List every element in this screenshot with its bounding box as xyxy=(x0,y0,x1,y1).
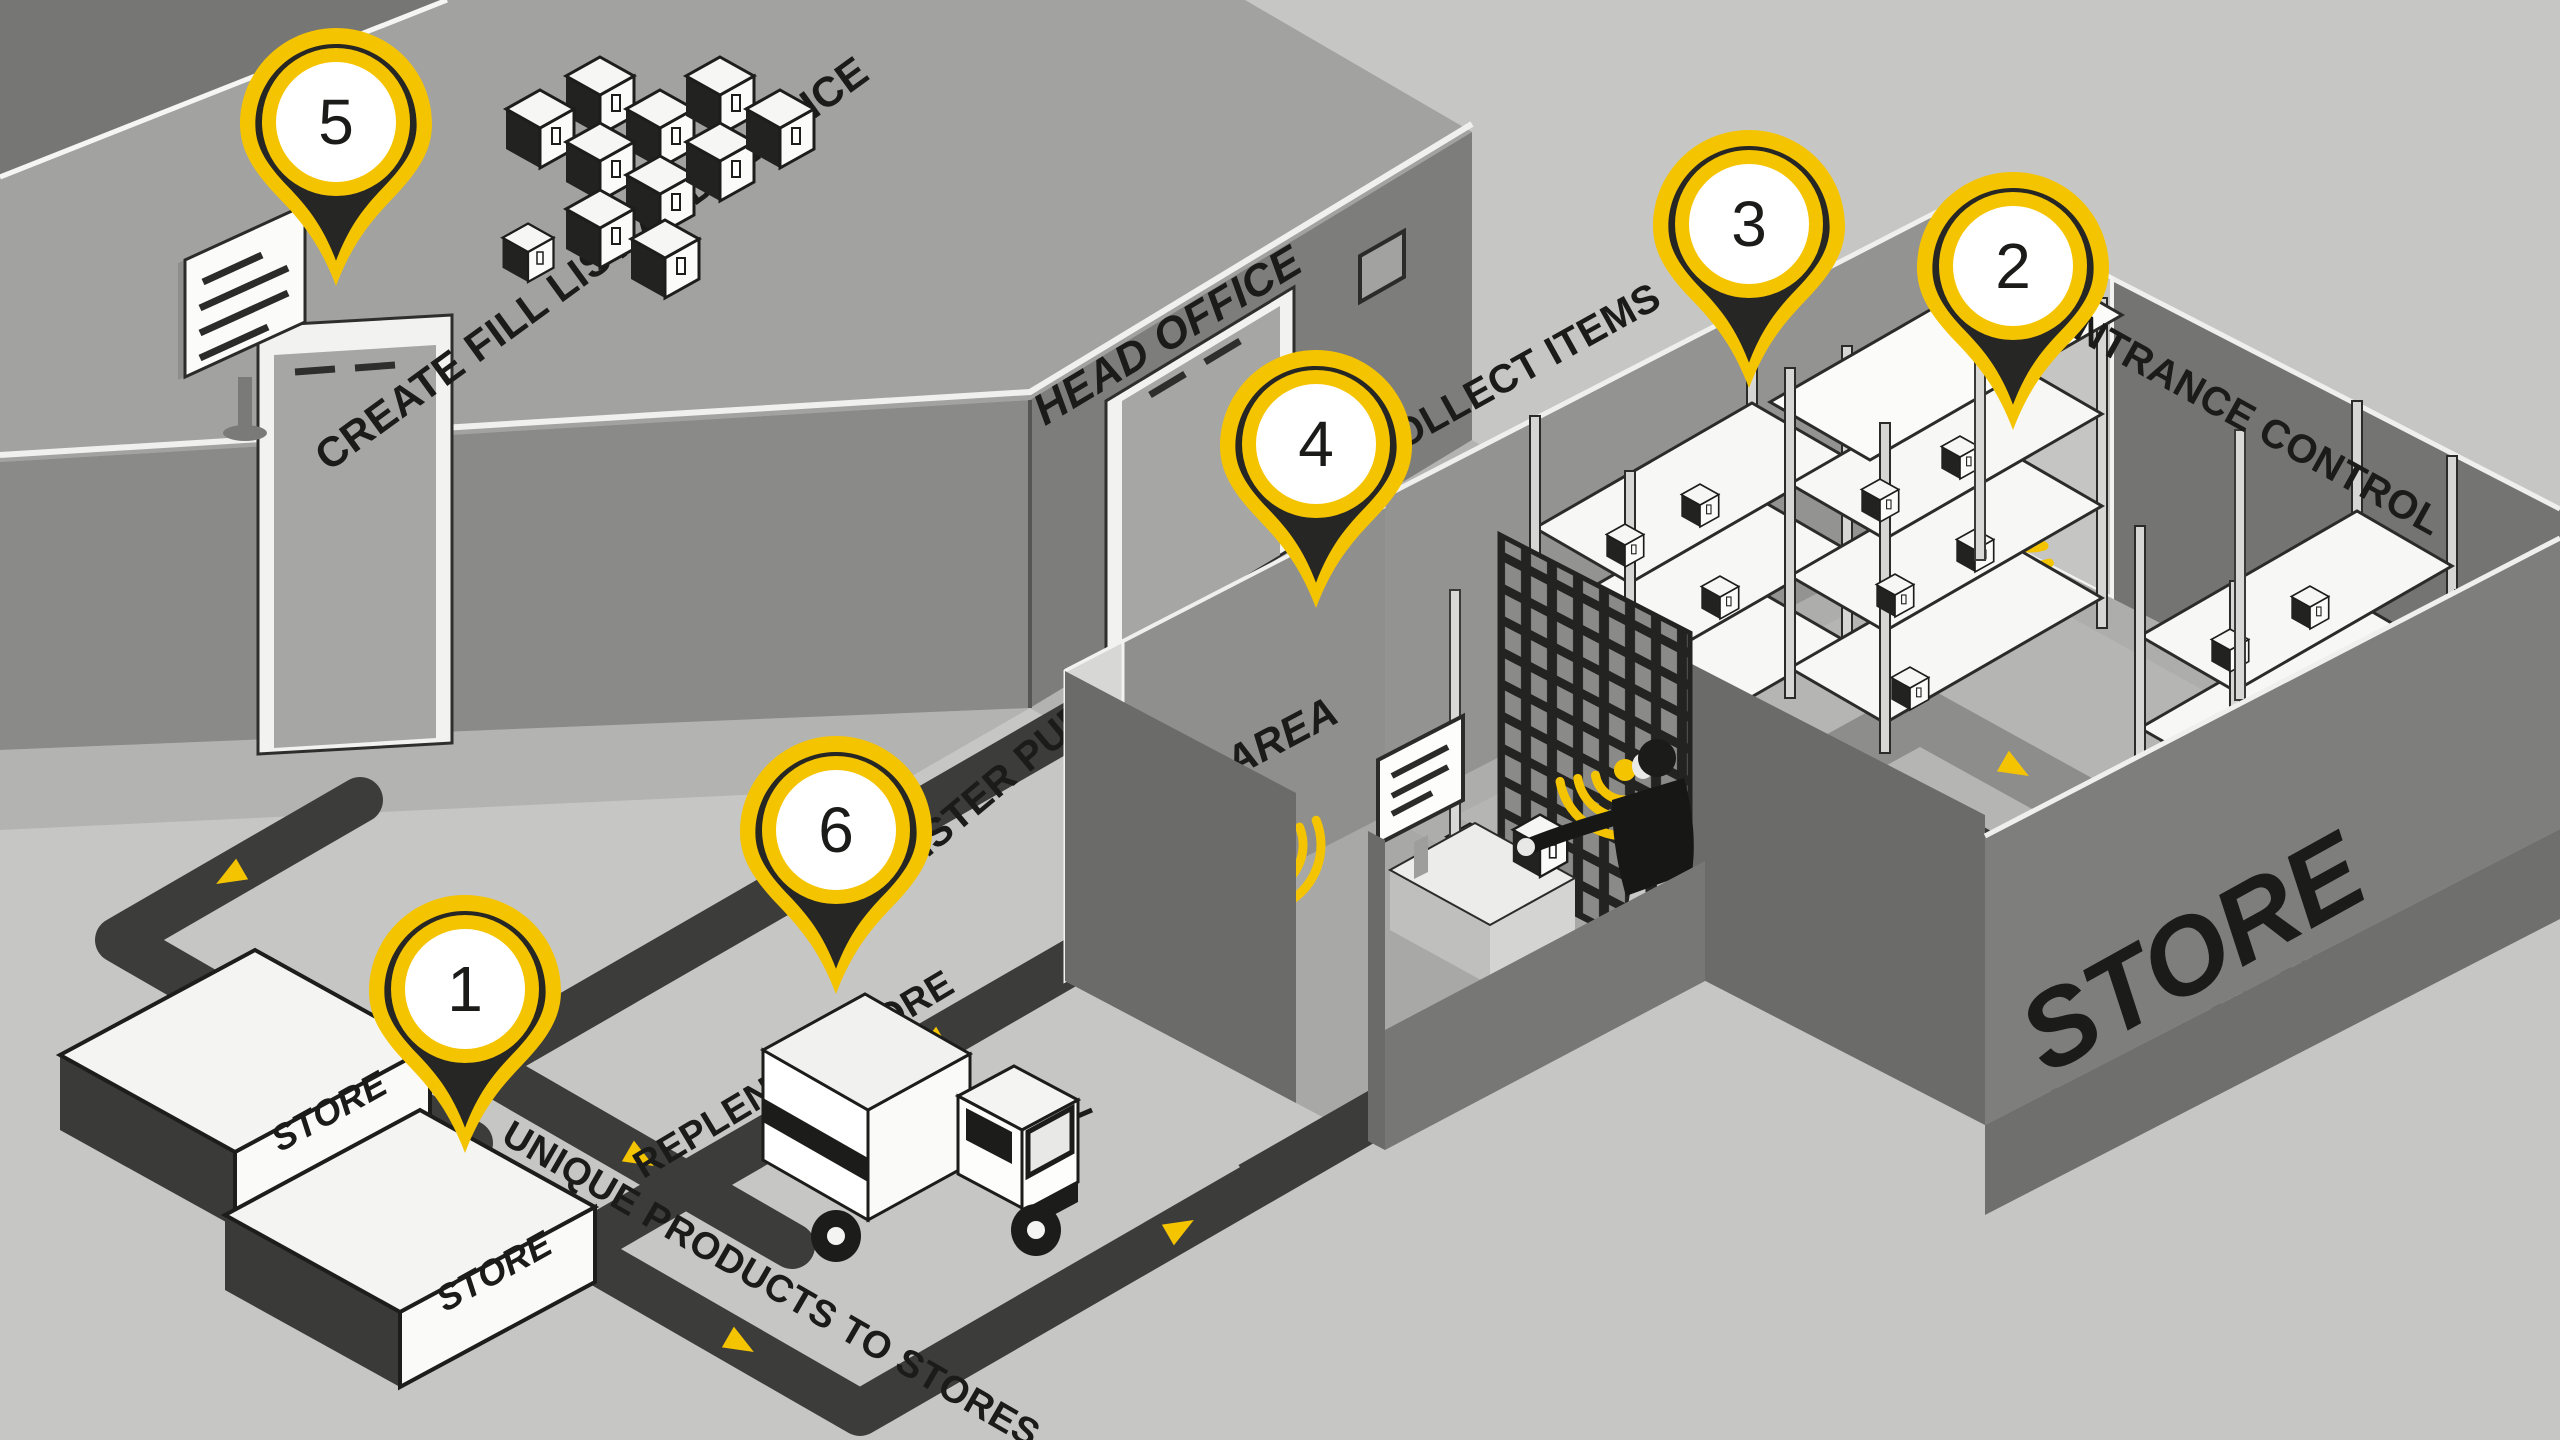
warehouse-pole xyxy=(2235,430,2245,700)
svg-text:4: 4 xyxy=(1298,408,1334,480)
svg-text:3: 3 xyxy=(1731,188,1767,260)
svg-text:2: 2 xyxy=(1995,230,2031,302)
isometric-diagram: REGISTER PURCHASES REPLENISH STORE UNIQU… xyxy=(0,0,2560,1440)
svg-text:1: 1 xyxy=(447,953,483,1025)
svg-text:6: 6 xyxy=(818,794,854,866)
svg-text:5: 5 xyxy=(318,86,354,158)
